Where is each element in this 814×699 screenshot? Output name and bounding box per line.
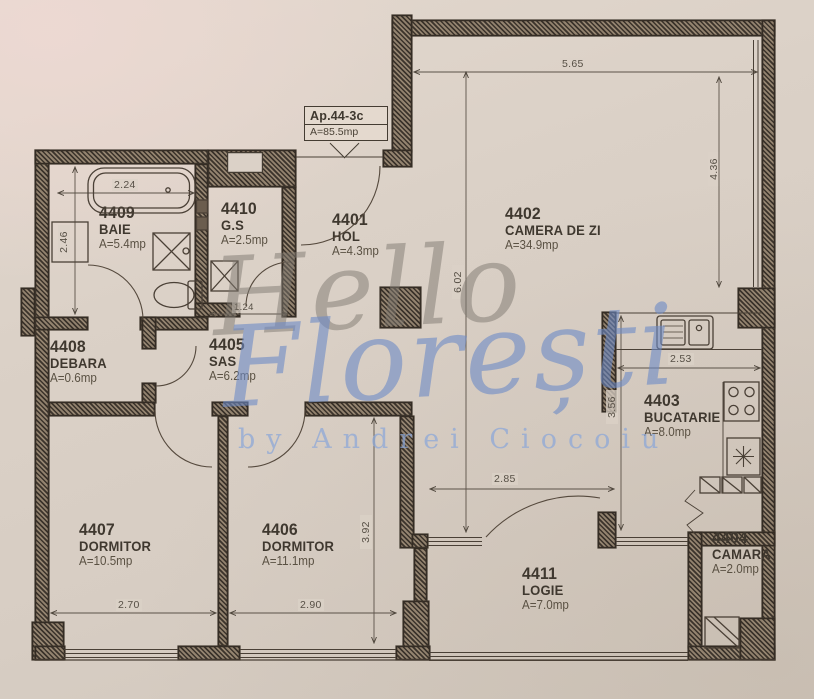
room-id: 4407 (79, 521, 151, 539)
wall-bath-top (35, 150, 208, 164)
wall-gs-right (282, 187, 296, 317)
pillar-right (738, 288, 775, 328)
room-area: A=0.6mp (50, 372, 107, 386)
room-name: LOGIE (522, 583, 569, 598)
room-id: 4410 (221, 200, 268, 218)
wall-logia-door-post (598, 512, 616, 548)
dim-bedroom1-width: 2.70 (116, 599, 142, 611)
room-label-camara: 4404 CAMARA A=2.0mp (712, 529, 771, 577)
room-area: A=11.1mp (262, 555, 334, 569)
room-area: A=2.5mp (221, 234, 268, 248)
dim-living-height: 6.02 (452, 265, 464, 299)
room-id: 4406 (262, 521, 334, 539)
room-name: CAMARA (712, 547, 771, 562)
pillar-left-outer (21, 288, 35, 336)
room-area: A=34.9mp (505, 239, 601, 253)
room-area: A=7.0mp (522, 599, 569, 613)
room-label-baie: 4409 BAIE A=5.4mp (99, 204, 146, 252)
room-label-sas: 4405 SAS A=6.2mp (209, 336, 256, 384)
room-label-gs: 4410 G.S A=2.5mp (221, 200, 268, 248)
wall-bed2-right (400, 416, 414, 548)
room-area: A=4.3mp (332, 245, 379, 259)
room-label-camera-de-zi: 4402 CAMERA DE ZI A=34.9mp (505, 205, 601, 253)
room-name: DEBARA (50, 356, 107, 371)
room-area: A=6.2mp (209, 370, 256, 384)
room-area: A=5.4mp (99, 238, 146, 252)
room-name: G.S (221, 218, 268, 233)
wall-camara-left (688, 532, 702, 648)
wall-logia-pier (412, 534, 428, 548)
wall-bottom-a (35, 646, 65, 660)
wall-logia-left (414, 548, 427, 603)
dim-right-height: 4.36 (708, 152, 720, 186)
room-id: 4409 (99, 204, 146, 222)
dim-bath-height: 2.46 (58, 225, 70, 259)
room-id: 4402 (505, 205, 601, 223)
wall-top (392, 20, 775, 36)
dim-bedroom2-width: 2.90 (298, 599, 324, 611)
room-area: A=8.0mp (644, 426, 720, 440)
room-name: BUCATARIE (644, 410, 720, 425)
room-name: BAIE (99, 222, 146, 237)
watermark-byline: by Andrei Ciocoiu (238, 424, 669, 455)
opening-zigzag (685, 490, 703, 536)
room-id: 4411 (522, 565, 569, 583)
dim-logia-opening: 2.85 (492, 473, 518, 485)
wall-left (35, 150, 49, 660)
room-label-logie: 4411 LOGIE A=7.0mp (522, 565, 569, 613)
wall-sas-bottom-a (49, 402, 155, 416)
room-label-debara: 4408 DEBARA A=0.6mp (50, 338, 107, 386)
wall-bottom-c (396, 646, 430, 660)
room-area: A=10.5mp (79, 555, 151, 569)
wall-bath-bottom-left (35, 317, 88, 330)
room-id: 4401 (332, 211, 379, 229)
wall-bath-gs (195, 164, 208, 317)
room-name: DORMITOR (262, 539, 334, 554)
pillar-bottom-right (740, 618, 775, 660)
room-label-dormitor-1: 4407 DORMITOR A=10.5mp (79, 521, 151, 569)
room-id: 4408 (50, 338, 107, 356)
wall-debara-right-upper (142, 317, 156, 349)
wall-sas-bottom-c (305, 402, 412, 416)
dim-bedroom2-height: 3.92 (360, 515, 372, 549)
room-name: DORMITOR (79, 539, 151, 554)
dim-kitchen-height: 3.56 (606, 390, 618, 424)
dim-kitchen-width: 2.53 (668, 353, 694, 365)
room-label-bucatarie: 4403 BUCATARIE A=8.0mp (644, 392, 720, 440)
apartment-id: Ap.44-3c (305, 107, 387, 125)
wall-sas-bottom-b (212, 402, 248, 416)
room-id: 4404 (712, 529, 771, 547)
apartment-tag: Ap.44-3c A=85.5mp (304, 106, 388, 141)
dim-top-width: 5.65 (560, 58, 586, 70)
apartment-area: A=85.5mp (305, 125, 387, 140)
dim-gs-width: 1.24 (232, 302, 256, 313)
room-label-dormitor-2: 4406 DORMITOR A=11.1mp (262, 521, 334, 569)
room-name: HOL (332, 229, 379, 244)
shaft-niche (227, 152, 263, 173)
wall-step (392, 15, 412, 152)
room-label-hol: 4401 HOL A=4.3mp (332, 211, 379, 259)
room-id: 4405 (209, 336, 256, 354)
wall-bottom-b (178, 646, 240, 660)
pillar-center (380, 287, 421, 328)
room-name: CAMERA DE ZI (505, 223, 601, 238)
room-name: SAS (209, 354, 256, 369)
wall-step-foot (383, 150, 412, 167)
wall-debara-right-lower (142, 383, 156, 403)
wall-bedroom-divider (218, 416, 228, 646)
room-area: A=2.0mp (712, 563, 771, 577)
floor-plan: Ap.44-3c A=85.5mp 4409 BAIE A=5.4mp 4410… (0, 0, 814, 699)
room-id: 4403 (644, 392, 720, 410)
dim-bath-width: 2.24 (112, 179, 138, 191)
